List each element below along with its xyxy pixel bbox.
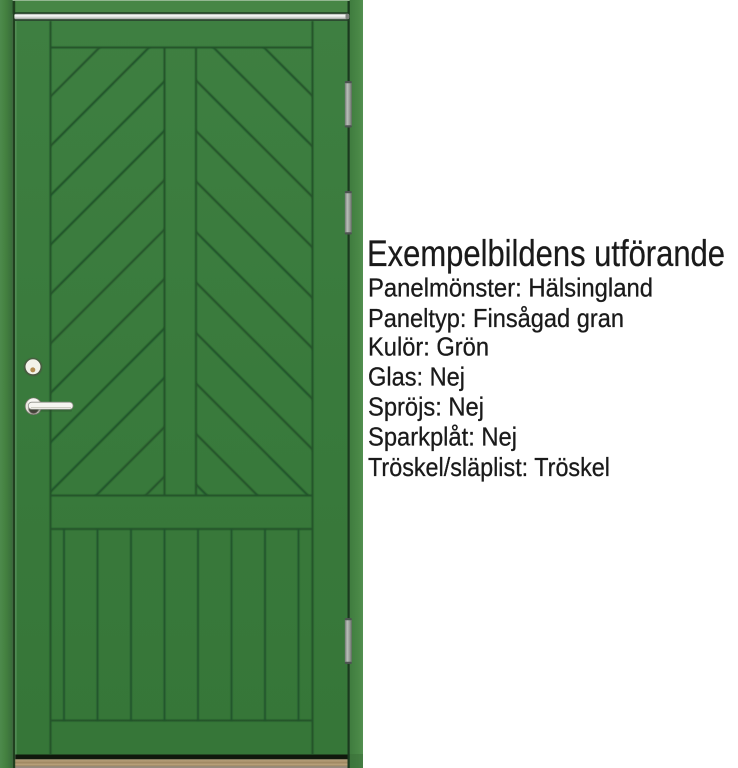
svg-text:Paneltyp: Finsågad gran: Paneltyp: Finsågad gran <box>368 303 624 333</box>
svg-text:Exempelbildens utförande: Exempelbildens utförande <box>367 233 725 274</box>
svg-text:Glas: Nej: Glas: Nej <box>368 362 465 392</box>
svg-text:Panelmönster: Hälsingland: Panelmönster: Hälsingland <box>368 272 653 302</box>
svg-text:Spröjs: Nej: Spröjs: Nej <box>368 391 484 421</box>
svg-text:Tröskel/släplist: Tröskel: Tröskel/släplist: Tröskel <box>368 452 610 482</box>
svg-text:Kulör: Grön: Kulör: Grön <box>368 332 489 362</box>
svg-text:Sparkplåt: Nej: Sparkplåt: Nej <box>368 422 517 452</box>
